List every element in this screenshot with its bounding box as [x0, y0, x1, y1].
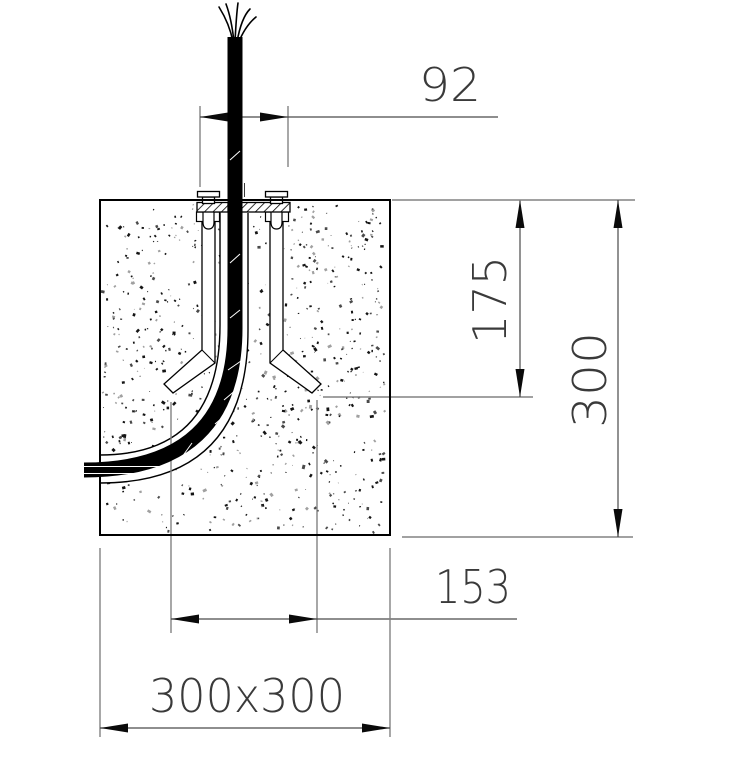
arrowhead	[614, 200, 623, 228]
arrowhead	[100, 724, 128, 733]
dimension-label: 175	[463, 256, 517, 344]
dimension-label: 92	[419, 58, 481, 112]
arrowhead	[171, 615, 199, 624]
dimension-label: 300	[563, 332, 617, 428]
dim-plate-width: 92	[200, 58, 498, 187]
bolt-cap-left	[198, 192, 220, 198]
arrowhead	[289, 615, 317, 624]
frayed-wires	[219, 3, 256, 44]
arrowhead	[200, 113, 228, 122]
arrowhead	[362, 724, 390, 733]
technical-drawing: 92 175 300 153 300x300	[0, 0, 734, 772]
arrowhead	[260, 113, 288, 122]
arrowhead	[516, 200, 525, 228]
arrowhead	[516, 369, 525, 397]
arrowhead	[614, 509, 623, 537]
dim-block-size: 300x300	[100, 548, 390, 737]
dimension-label: 153	[435, 560, 511, 614]
dimension-label: 300x300	[149, 669, 345, 723]
anchor-loop-right	[271, 212, 282, 229]
dim-block-height: 300	[392, 200, 635, 537]
drawing-canvas: 92 175 300 153 300x300	[0, 0, 734, 772]
anchor-loop-left	[203, 212, 214, 229]
bolt-cap-right	[266, 192, 288, 198]
